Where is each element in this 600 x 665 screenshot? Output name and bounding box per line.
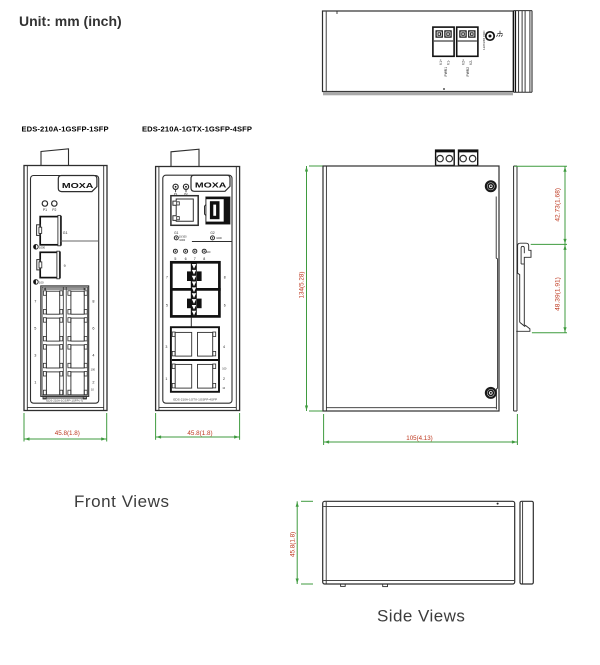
svg-text:100: 100 — [39, 281, 44, 285]
svg-text:V2+: V2+ — [462, 59, 466, 65]
svg-text:6: 6 — [185, 257, 187, 261]
svg-text:EDS-210A-1GSFP-1SFP(-T): EDS-210A-1GSFP-1SFP(-T) — [46, 399, 83, 403]
svg-text:1000: 1000 — [39, 245, 46, 249]
svg-text:105(4.13): 105(4.13) — [406, 435, 433, 442]
svg-text:48.39(1.91): 48.39(1.91) — [554, 277, 561, 311]
svg-text:8: 8 — [224, 276, 226, 280]
svg-text:V2-: V2- — [469, 60, 473, 65]
svg-text:EDS-210A-1GSFP-1SFP: EDS-210A-1GSFP-1SFP — [22, 125, 109, 134]
svg-text:V1+: V1+ — [439, 59, 443, 65]
svg-text:/1000: /1000 — [179, 239, 186, 242]
svg-text:Front Views: Front Views — [74, 492, 170, 511]
svg-text:6: 6 — [92, 327, 94, 331]
svg-text:7: 7 — [166, 276, 168, 280]
svg-text:2: 2 — [92, 380, 94, 384]
svg-text:10: 10 — [91, 387, 94, 391]
svg-text:1: 1 — [34, 380, 36, 384]
svg-text:EDS-210A-1GTX-1GSFP-4SFP: EDS-210A-1GTX-1GSFP-4SFP — [173, 397, 217, 401]
svg-text:P1: P1 — [43, 208, 47, 212]
svg-text:EDS-210A-1GTX-1GSFP-4SFP: EDS-210A-1GTX-1GSFP-4SFP — [142, 125, 252, 134]
svg-text:7: 7 — [194, 257, 196, 261]
svg-text:1: 1 — [165, 377, 167, 381]
svg-text:P2: P2 — [52, 208, 56, 212]
svg-text:45.8(1.8): 45.8(1.8) — [187, 430, 212, 437]
svg-text:V1-: V1- — [447, 60, 451, 65]
svg-text:Side Views: Side Views — [377, 607, 465, 626]
svg-text:6: 6 — [224, 304, 226, 308]
svg-text:4: 4 — [92, 353, 94, 357]
svg-text:42.73(1.68): 42.73(1.68) — [554, 188, 561, 222]
svg-text:4: 4 — [223, 345, 225, 349]
svg-text:100: 100 — [206, 251, 211, 254]
svg-text:100: 100 — [222, 368, 227, 371]
svg-text:MOXA: MOXA — [195, 181, 227, 190]
svg-text:MOXA: MOXA — [62, 181, 94, 190]
svg-text:10: 10 — [222, 387, 225, 390]
svg-text:5: 5 — [166, 304, 168, 308]
svg-text:45.8(1.8): 45.8(1.8) — [55, 430, 80, 437]
svg-text:8: 8 — [92, 300, 94, 304]
svg-text:5: 5 — [174, 257, 176, 261]
svg-text:45.8(1.8): 45.8(1.8) — [289, 532, 296, 557]
svg-text:PWR1: PWR1 — [444, 67, 448, 77]
svg-text:12/24/48 VDC: 12/24/48 VDC — [482, 30, 486, 50]
svg-text:10/100: 10/100 — [179, 235, 187, 238]
svg-text:134(5.28): 134(5.28) — [299, 272, 306, 299]
svg-text:Unit: mm (inch): Unit: mm (inch) — [19, 13, 122, 29]
svg-text:2: 2 — [223, 377, 225, 381]
svg-text:9: 9 — [64, 264, 66, 268]
svg-text:100: 100 — [91, 368, 96, 372]
svg-text:G2: G2 — [210, 231, 214, 235]
svg-text:PWR2: PWR2 — [466, 67, 470, 77]
svg-text:5: 5 — [34, 327, 36, 331]
svg-text:3: 3 — [34, 353, 36, 357]
svg-text:1000: 1000 — [216, 237, 222, 240]
svg-text:7: 7 — [34, 300, 36, 304]
svg-text:8: 8 — [203, 257, 205, 261]
svg-text:G1: G1 — [63, 231, 68, 235]
svg-text:3: 3 — [165, 345, 167, 349]
